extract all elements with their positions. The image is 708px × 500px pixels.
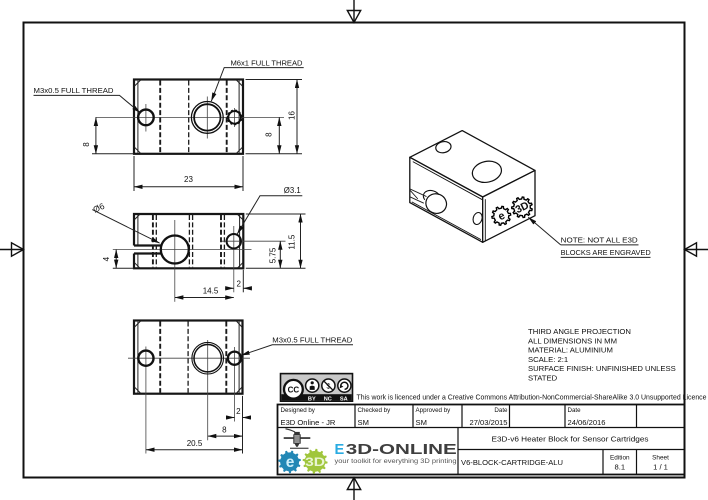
svg-text:V6-BLOCK-CARTRIDGE-ALU: V6-BLOCK-CARTRIDGE-ALU [461,458,563,467]
svg-text:8: 8 [222,425,227,434]
svg-text:14.5: 14.5 [203,287,219,296]
svg-text:3D-ONLINE: 3D-ONLINE [346,442,457,458]
svg-text:Designed by: Designed by [281,407,316,414]
svg-text:2: 2 [236,279,241,288]
svg-text:8: 8 [82,142,91,147]
svg-text:SCALE: 2:1: SCALE: 2:1 [528,355,568,364]
svg-text:NOTE: NOT ALL E3D: NOTE: NOT ALL E3D [561,235,638,244]
svg-text:M6x1 FULL THREAD: M6x1 FULL THREAD [231,58,303,67]
svg-text:11.5: 11.5 [288,234,297,250]
svg-text:23: 23 [184,175,193,184]
svg-text:20.5: 20.5 [187,439,203,448]
svg-text:e: e [286,454,295,471]
svg-text:Checked by: Checked by [358,407,392,414]
svg-text:MATERIAL: ALUMINIUM: MATERIAL: ALUMINIUM [528,346,613,355]
svg-text:Edition: Edition [610,455,630,462]
svg-text:Approved by: Approved by [416,407,452,414]
svg-text:SA: SA [340,396,348,402]
svg-text:THIRD ANGLE PROJECTION: THIRD ANGLE PROJECTION [528,327,631,336]
svg-text:E: E [335,442,345,458]
svg-text:M3x0.5 FULL THREAD: M3x0.5 FULL THREAD [272,336,352,345]
svg-text:BY: BY [308,396,316,402]
svg-text:16: 16 [288,111,297,120]
svg-text:ALL DIMENSIONS IN MM: ALL DIMENSIONS IN MM [528,336,617,345]
svg-text:your toolkit for everything 3D: your toolkit for everything 3D printing [335,458,457,465]
svg-text:SM: SM [416,418,427,427]
svg-text:This work is licenced under a: This work is licenced under a Creative C… [357,394,707,401]
svg-text:8: 8 [265,132,274,137]
svg-text:CC: CC [288,385,300,394]
svg-text:E3D-v6 Heater Block for Sensor: E3D-v6 Heater Block for Sensor Cartridge… [492,435,649,444]
svg-text:3D: 3D [305,457,325,469]
svg-text:BLOCKS ARE ENGRAVED: BLOCKS ARE ENGRAVED [561,248,651,257]
svg-text:NC: NC [324,396,332,402]
svg-text:2: 2 [236,407,241,416]
svg-text:5.75: 5.75 [268,247,277,263]
svg-text:STATED: STATED [528,374,558,383]
svg-text:8.1: 8.1 [615,462,626,471]
svg-text:E3D Online - JR: E3D Online - JR [281,418,336,427]
svg-text:Ø3.1: Ø3.1 [284,186,301,195]
svg-text:4: 4 [102,256,111,261]
svg-text:SURFACE FINISH: UNFINISHED UNL: SURFACE FINISH: UNFINISHED UNLESS [528,364,676,373]
svg-text:Date: Date [568,407,582,414]
svg-text:Sheet: Sheet [652,455,669,462]
svg-text:27/03/2015: 27/03/2015 [469,418,507,427]
svg-text:1 / 1: 1 / 1 [653,462,668,471]
svg-text:24/06/2016: 24/06/2016 [568,418,606,427]
svg-text:Date: Date [494,407,508,414]
svg-text:M3x0.5 FULL THREAD: M3x0.5 FULL THREAD [34,86,114,95]
svg-text:SM: SM [358,418,369,427]
